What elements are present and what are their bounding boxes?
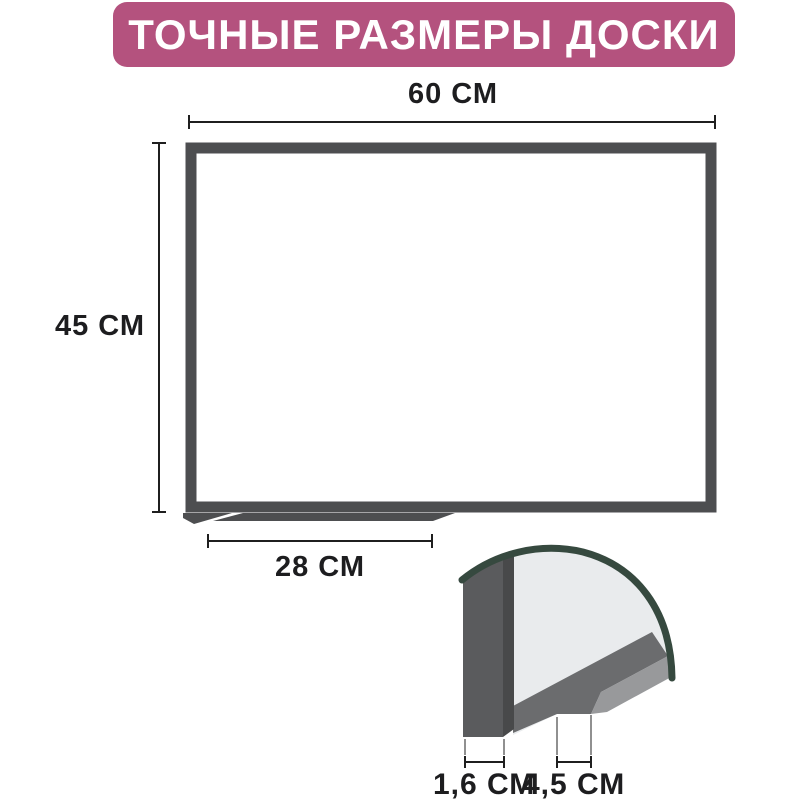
board-front-view bbox=[183, 148, 711, 524]
width-label: 60 СМ bbox=[353, 78, 553, 111]
cross-section-view bbox=[462, 548, 673, 737]
frame-thickness-label: 1,6 СМ bbox=[433, 768, 533, 802]
pen-tray bbox=[213, 513, 455, 521]
board-frame bbox=[191, 148, 711, 507]
infographic-page: { "title": { "text": "ТОЧНЫЕ РАЗМЕРЫ ДОС… bbox=[0, 0, 800, 800]
tray-width-dimension-arrow bbox=[208, 534, 432, 548]
height-label: 45 СМ bbox=[15, 310, 185, 343]
tray-depth-dimension bbox=[557, 715, 591, 768]
tray-depth-label: 4,5 СМ bbox=[523, 768, 623, 802]
frame-profile-slab bbox=[463, 557, 503, 737]
board-dimensions-diagram bbox=[0, 0, 800, 800]
frame-thickness-dimension bbox=[465, 739, 504, 768]
width-dimension-arrow bbox=[189, 115, 715, 129]
frame-profile-shadow-strip bbox=[503, 552, 514, 737]
tray-width-label: 28 СМ bbox=[220, 551, 420, 584]
